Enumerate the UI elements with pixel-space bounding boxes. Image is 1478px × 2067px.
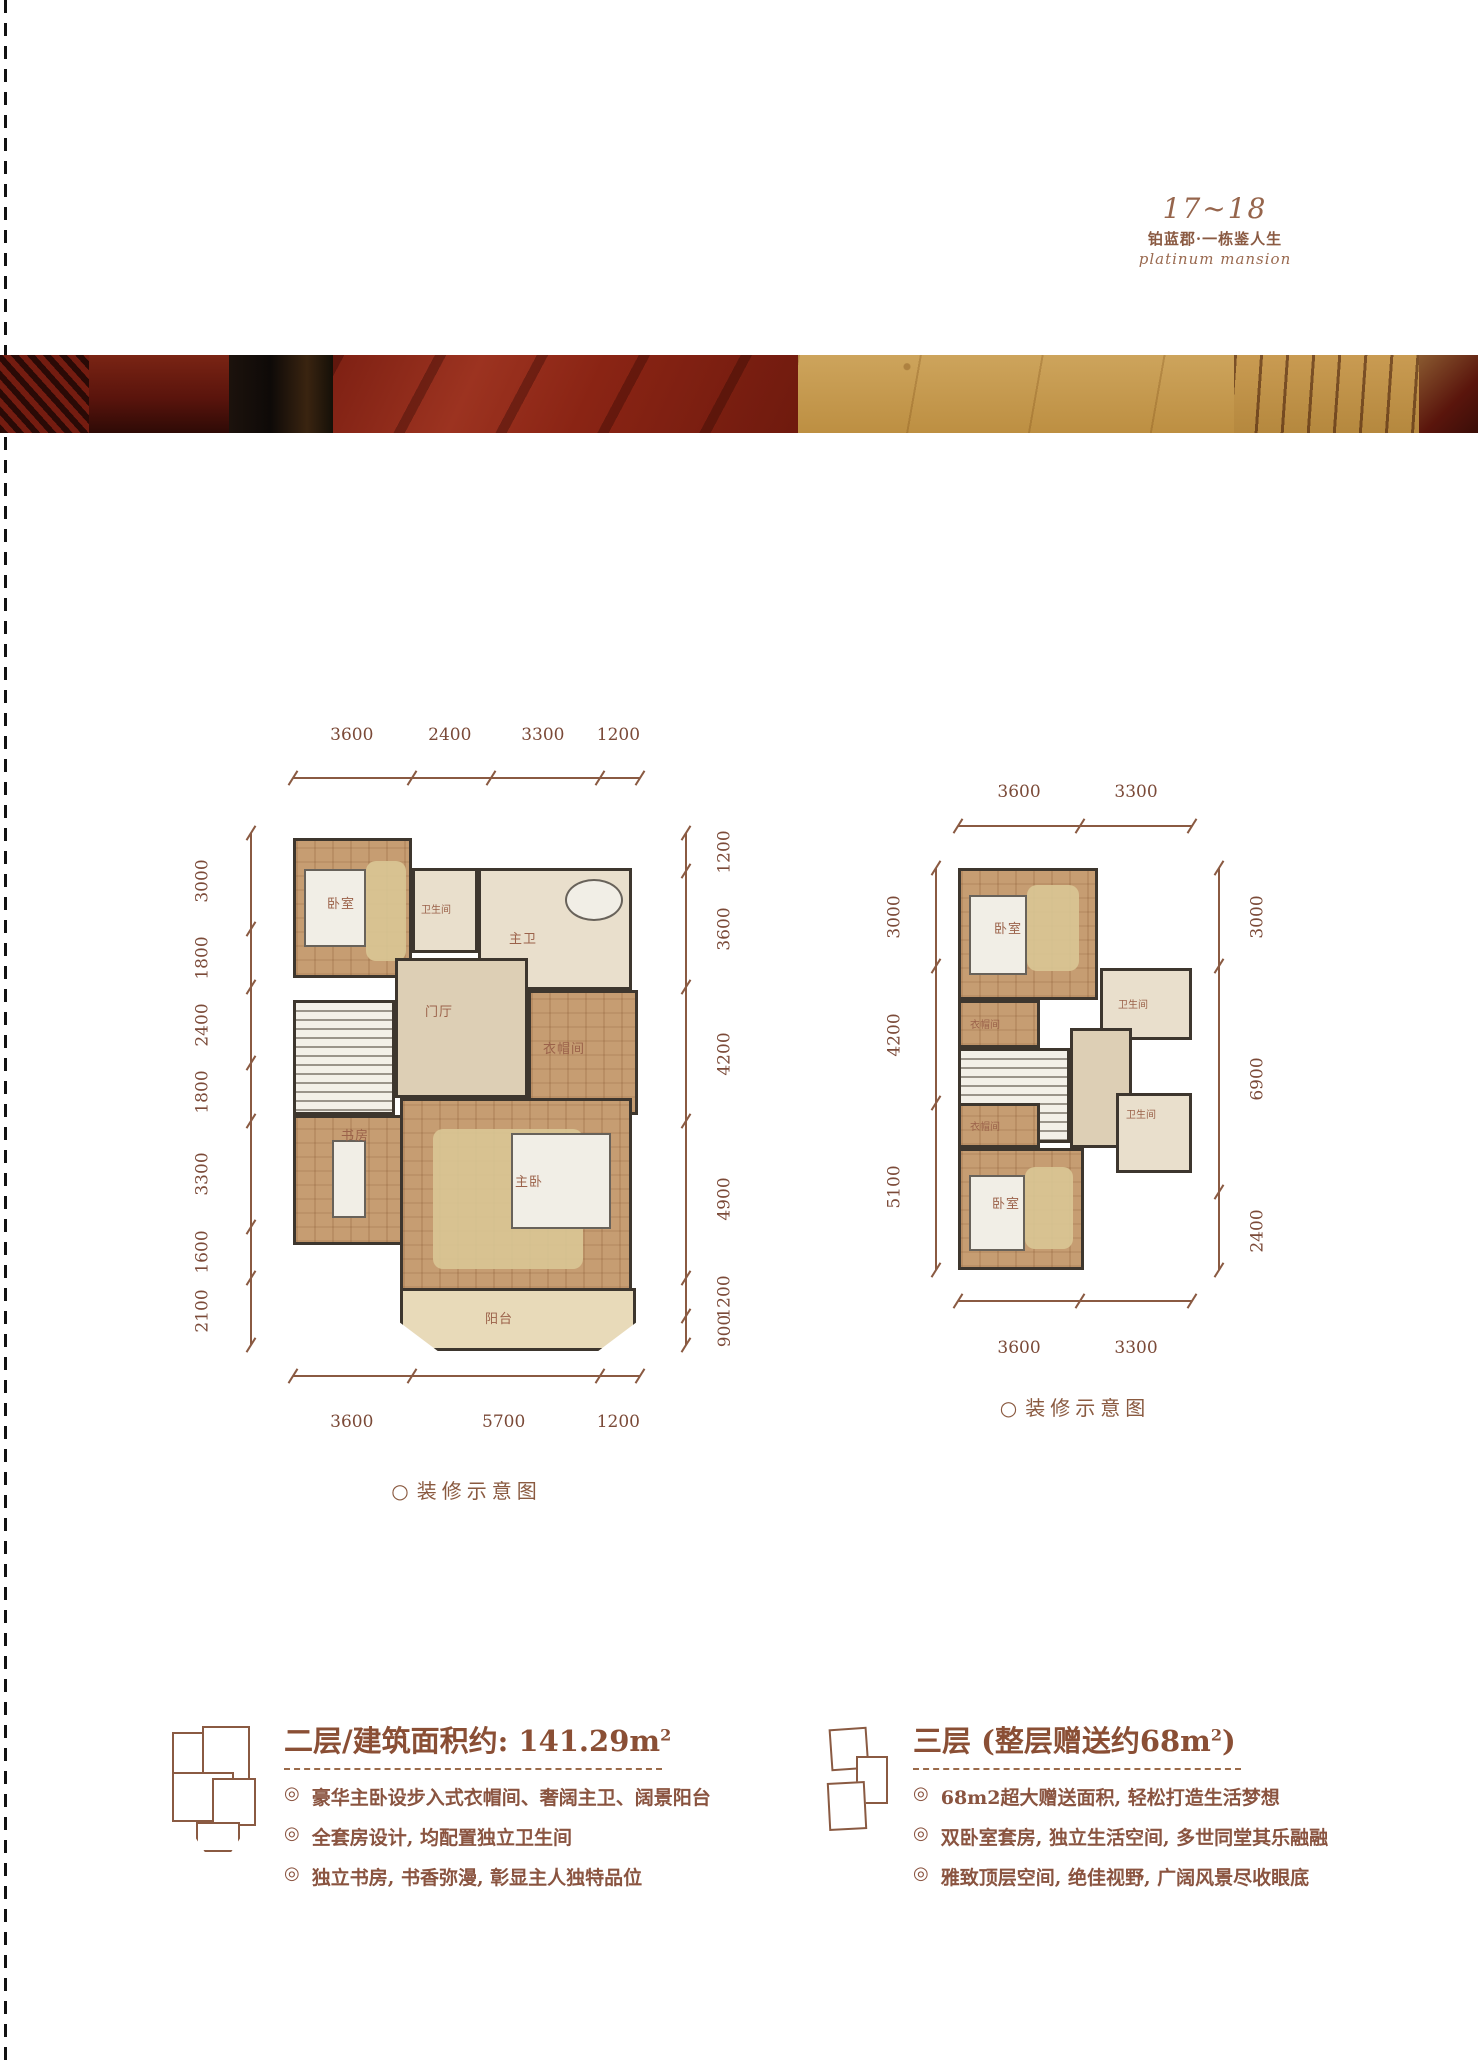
feature-item: ◎68m2超大赠送面积, 轻松打造生活梦想 [913, 1783, 1302, 1810]
dim-tick [246, 1337, 257, 1352]
dim-tick [407, 1368, 418, 1383]
rug [1027, 885, 1079, 971]
dim-value: 3300 [193, 1152, 213, 1195]
dim-value: 3300 [1080, 782, 1192, 802]
feature-item: ◎雅致顶层空间, 绝佳视野, 广阔风景尽收眼底 [913, 1863, 1302, 1890]
dim-value: 4900 [715, 1178, 735, 1221]
room-balcony [400, 1288, 636, 1351]
project-title-cn: 铂蓝郡·一栋鉴人生 [1130, 228, 1300, 249]
room-label: 阳台 [485, 1308, 513, 1327]
floor3-thumbnail-icon [822, 1728, 892, 1838]
room-bath-bottom [1116, 1093, 1192, 1173]
bullet-icon: ◎ [284, 1783, 300, 1804]
feature-text: 独立书房, 书香弥漫, 彰显主人独特品位 [312, 1863, 642, 1890]
dim-tick [595, 1368, 606, 1383]
dim-value: 3000 [885, 895, 905, 938]
banner-gold-tufting [798, 355, 1234, 433]
floor2-title-sup: 2 [660, 1725, 671, 1744]
floor2-dims-left: 3000 1800 2400 1800 3300 1600 2100 [180, 833, 226, 1345]
floor3-title: 三层 (整层赠送约68m2) [913, 1718, 1302, 1760]
title-separator [913, 1768, 1241, 1770]
title-separator [284, 1768, 662, 1770]
floor3-floorplan: 卧室 衣帽间 卫生间 卫生间 衣帽间 卧室 [958, 868, 1192, 1270]
floor2-title-text: 二层/建筑面积约: 141.29m [284, 1724, 660, 1758]
circle-icon: ○ [1000, 1396, 1017, 1420]
dim-tick [246, 921, 257, 936]
dim-tick [288, 770, 299, 785]
dim-tick [931, 1096, 942, 1111]
dim-tick [681, 825, 692, 840]
desk [332, 1140, 366, 1218]
room-label: 书房 [341, 1125, 369, 1144]
floor2-caption: ○装修示意图 [293, 1475, 640, 1504]
room-foyer [395, 958, 528, 1098]
bullet-icon: ◎ [913, 1863, 929, 1884]
floor3-title-sup: 2 [1211, 1725, 1222, 1744]
room-label: 卧室 [994, 918, 1022, 937]
dim-value: 2400 [193, 1003, 213, 1046]
floor3-caption: ○装修示意图 [958, 1392, 1192, 1421]
dim-tick [931, 860, 942, 875]
dim-value: 3300 [489, 725, 597, 745]
dim-value: 5100 [885, 1165, 905, 1208]
dim-tick [681, 1337, 692, 1352]
dim-tick [1214, 958, 1225, 973]
dim-value: 900 [715, 1314, 735, 1346]
floor2-plan-block: 3600 2400 3300 1200 3000 1800 2400 1800 … [170, 690, 780, 1550]
dim-line [293, 1375, 640, 1377]
room-bedroom-top [958, 868, 1098, 1000]
dim-value: 3000 [193, 859, 213, 902]
page-number: 17~18 [1130, 192, 1300, 225]
room-master-bedroom [400, 1098, 632, 1305]
bullet-icon: ◎ [284, 1823, 300, 1844]
feature-item: ◎豪华主卧设步入式衣帽间、奢阔主卫、阔景阳台 [284, 1783, 692, 1810]
bullet-icon: ◎ [913, 1783, 929, 1804]
dim-tick [681, 1270, 692, 1285]
floor3-plan-block: 3600 3300 3000 4200 5100 3000 6900 [860, 740, 1300, 1460]
dim-line [958, 1300, 1192, 1302]
floor3-dims-bottom: 3600 3300 [958, 1338, 1192, 1358]
dim-value: 1200 [715, 831, 735, 874]
banner-curtain-lines [1234, 355, 1419, 433]
feature-text: 全套房设计, 均配置独立卫生间 [312, 1823, 572, 1850]
feature-item: ◎全套房设计, 均配置独立卫生间 [284, 1823, 692, 1850]
room-label: 门厅 [425, 1001, 453, 1020]
project-title-en: platinum mansion [1130, 250, 1300, 268]
dim-tick [1214, 860, 1225, 875]
dim-value: 1200 [597, 725, 640, 745]
feature-text: 双卧室套房, 独立生活空间, 多世同堂其乐融融 [941, 1823, 1328, 1850]
dim-value: 4200 [715, 1032, 735, 1075]
room-label: 卫生间 [421, 901, 451, 916]
bullet-icon: ◎ [284, 1863, 300, 1884]
dim-tick [1214, 1184, 1225, 1199]
circle-icon: ○ [391, 1479, 408, 1503]
dim-line [958, 825, 1192, 827]
banner-carved-wood [0, 355, 89, 433]
dim-tick [246, 1219, 257, 1234]
dim-tick [681, 1113, 692, 1128]
dim-line [250, 833, 252, 1345]
dim-value: 3600 [715, 907, 735, 950]
floor3-title-suffix: ) [1222, 1724, 1236, 1758]
caption-text: 装修示意图 [1025, 1396, 1150, 1420]
dim-value: 3600 [293, 1412, 411, 1432]
room-label: 主卫 [509, 928, 537, 947]
dim-tick [486, 770, 497, 785]
room-label: 衣帽间 [970, 1118, 1000, 1133]
dim-line [685, 833, 687, 1345]
staircase [293, 1000, 395, 1115]
dim-tick [681, 864, 692, 879]
dim-tick [1187, 1293, 1198, 1308]
room-label: 衣帽间 [970, 1016, 1000, 1031]
floor2-dims-right: 1200 3600 4200 4900 1200 900 [702, 833, 748, 1345]
room-label: 卫生间 [1118, 996, 1148, 1011]
dim-value: 1200 [715, 1275, 735, 1318]
feature-text: 雅致顶层空间, 绝佳视野, 广阔风景尽收眼底 [941, 1863, 1309, 1890]
floor2-floorplan: 卧室 卫生间 主卫 门厅 衣帽间 书房 主卧 阳台 [293, 833, 640, 1345]
bed [969, 1175, 1025, 1251]
room-label: 卧室 [992, 1193, 1020, 1212]
dim-value: 3600 [958, 1338, 1080, 1358]
dim-tick [681, 979, 692, 994]
feature-item: ◎双卧室套房, 独立生活空间, 多世同堂其乐融融 [913, 1823, 1302, 1850]
dim-tick [931, 1262, 942, 1277]
floor3-dims-right: 3000 6900 2400 [1235, 868, 1281, 1270]
dim-value: 3000 [1248, 895, 1268, 938]
floor3-dims-top: 3600 3300 [958, 782, 1192, 802]
rug [1025, 1167, 1073, 1249]
feature-text: 豪华主卧设步入式衣帽间、奢阔主卫、阔景阳台 [312, 1783, 711, 1810]
floor3-dims-left: 3000 4200 5100 [872, 868, 918, 1270]
room-label: 衣帽间 [543, 1038, 585, 1057]
dim-tick [246, 979, 257, 994]
room-label: 卧室 [327, 893, 355, 912]
dim-value: 2400 [1248, 1209, 1268, 1252]
dim-value: 1800 [193, 1071, 213, 1114]
dim-value: 2100 [193, 1290, 213, 1333]
dim-tick [595, 770, 606, 785]
dim-value: 3600 [958, 782, 1080, 802]
banner-red-sofa [333, 355, 799, 433]
dim-value: 1200 [597, 1412, 640, 1432]
dim-tick [1214, 1262, 1225, 1277]
bathtub [565, 879, 623, 921]
room-label: 主卧 [515, 1171, 543, 1190]
dim-tick [635, 770, 646, 785]
caption-text: 装修示意图 [417, 1479, 542, 1503]
dim-tick [246, 1113, 257, 1128]
rug [366, 861, 406, 961]
left-dashed-border [4, 0, 7, 2067]
dim-tick [953, 818, 964, 833]
floor2-thumbnail-icon [172, 1726, 270, 1858]
dim-line [1218, 868, 1220, 1270]
dim-line [293, 777, 640, 779]
decorative-photo-banner [0, 355, 1478, 433]
floor3-title-text: 三层 (整层赠送约68m [913, 1724, 1211, 1758]
feature-text: 68m2超大赠送面积, 轻松打造生活梦想 [941, 1783, 1280, 1810]
room-label: 卫生间 [1126, 1106, 1156, 1121]
dim-tick [1075, 818, 1086, 833]
floor2-dims-bottom: 3600 5700 1200 [293, 1412, 640, 1432]
dim-tick [1187, 818, 1198, 833]
dim-tick [953, 1293, 964, 1308]
dim-line [935, 868, 937, 1270]
dim-tick [246, 1056, 257, 1071]
dim-tick [246, 1270, 257, 1285]
bullet-icon: ◎ [913, 1823, 929, 1844]
dim-value: 3600 [293, 725, 411, 745]
dim-value: 4200 [885, 1013, 905, 1056]
dim-tick [1075, 1293, 1086, 1308]
page-header: 17~18 铂蓝郡·一栋鉴人生 platinum mansion [1130, 192, 1300, 268]
brochure-page: 17~18 铂蓝郡·一栋鉴人生 platinum mansion 3600 24… [0, 0, 1478, 2067]
banner-maroon-furniture [89, 355, 229, 433]
dim-tick [681, 1308, 692, 1323]
feature-item: ◎独立书房, 书香弥漫, 彰显主人独特品位 [284, 1863, 692, 1890]
dim-value: 2400 [411, 725, 489, 745]
dim-value: 1600 [193, 1231, 213, 1274]
floor2-dims-top: 3600 2400 3300 1200 [293, 725, 640, 745]
dim-value: 6900 [1248, 1057, 1268, 1100]
dim-tick [246, 825, 257, 840]
dim-value: 5700 [411, 1412, 597, 1432]
dim-tick [635, 1368, 646, 1383]
banner-pillow-edge [1419, 355, 1478, 433]
dim-tick [288, 1368, 299, 1383]
dim-value: 1800 [193, 936, 213, 979]
room-bedroom-bottom [958, 1148, 1084, 1270]
dim-value: 3300 [1080, 1338, 1192, 1358]
dim-tick [407, 770, 418, 785]
banner-dark-gap [229, 355, 332, 433]
floor2-title: 二层/建筑面积约: 141.29m2 [284, 1718, 692, 1760]
dim-tick [931, 958, 942, 973]
